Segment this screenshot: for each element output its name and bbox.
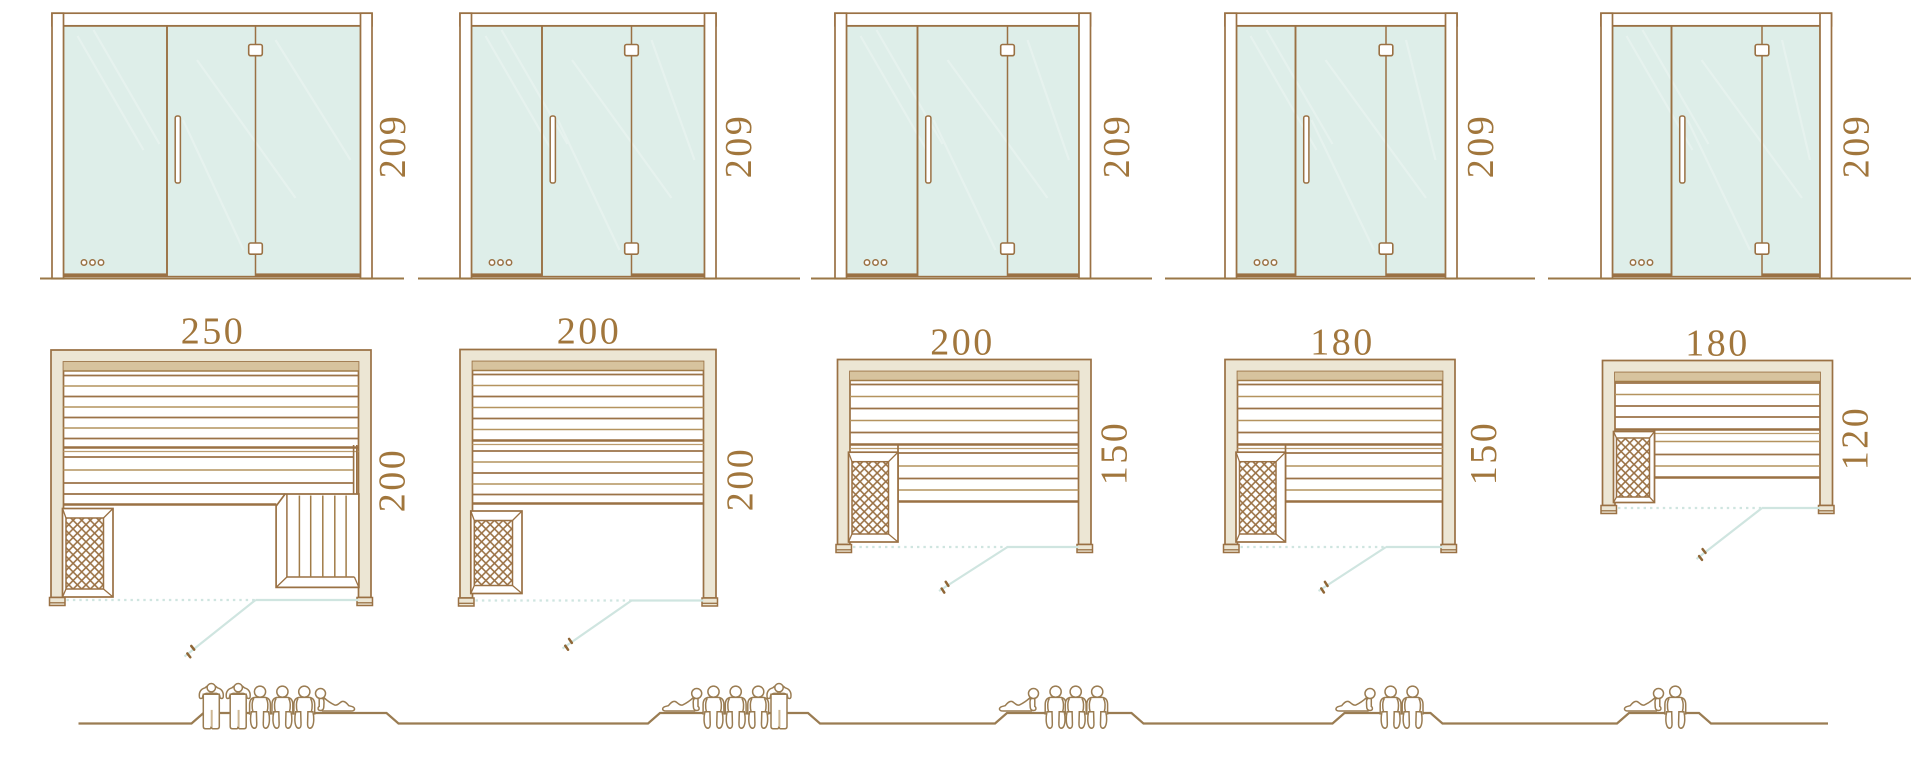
svg-text:200: 200 — [930, 322, 995, 364]
svg-text:209: 209 — [1096, 114, 1138, 179]
svg-text:150: 150 — [1463, 421, 1505, 486]
svg-text:209: 209 — [1460, 114, 1502, 179]
svg-text:180: 180 — [1310, 322, 1375, 364]
svg-text:120: 120 — [1835, 406, 1877, 471]
svg-text:209: 209 — [718, 114, 760, 179]
svg-text:150: 150 — [1094, 421, 1136, 486]
svg-text:200: 200 — [720, 447, 762, 512]
svg-text:250: 250 — [181, 311, 246, 353]
svg-text:180: 180 — [1685, 323, 1750, 365]
svg-text:200: 200 — [372, 448, 414, 513]
svg-text:209: 209 — [1836, 114, 1878, 179]
svg-text:209: 209 — [372, 114, 414, 179]
svg-text:200: 200 — [557, 311, 622, 353]
